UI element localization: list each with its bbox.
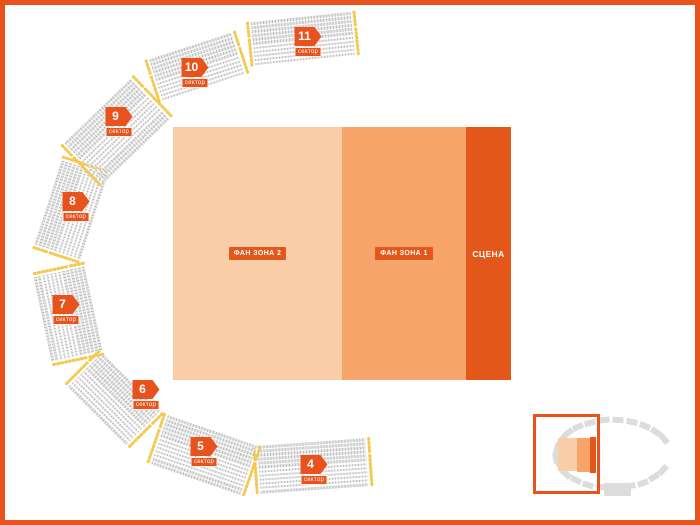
- minimap: [528, 404, 688, 506]
- sector-number: 6: [133, 380, 160, 399]
- sector-word-label: сектор: [53, 315, 79, 325]
- sector-number: 7: [53, 295, 80, 314]
- sector-11-badge: 11сектор: [295, 27, 322, 57]
- sector-word-label: сектор: [301, 475, 327, 485]
- sector-word-label: сектор: [191, 457, 217, 467]
- sector-word-label: сектор: [133, 400, 159, 410]
- minimap-sector-block: [658, 433, 670, 445]
- sector-word-label: сектор: [63, 212, 89, 222]
- sector-number: 5: [191, 437, 218, 456]
- sector-4-badge: 4сектор: [301, 455, 328, 485]
- field-zones: ФАН ЗОНА 2 ФАН ЗОНА 1 СЦЕНА: [173, 127, 511, 380]
- fan-zone-1-label: ФАН ЗОНА 1: [375, 247, 433, 260]
- sector-9-badge: 9сектор: [106, 107, 133, 137]
- sector-6-badge: 6сектор: [133, 380, 160, 410]
- stage-label: СЦЕНА: [472, 249, 504, 259]
- minimap-sector-block: [598, 417, 610, 424]
- sector-8-badge: 8сектор: [63, 192, 90, 222]
- zone-fan-zone-1[interactable]: ФАН ЗОНА 1: [342, 127, 466, 380]
- sector-number: 8: [63, 192, 90, 211]
- fan-zone-2-label: ФАН ЗОНА 2: [229, 247, 287, 260]
- minimap-sector-block: [613, 417, 624, 424]
- minimap-sector-block: [648, 472, 661, 483]
- zone-stage: СЦЕНА: [466, 127, 511, 380]
- sector-7-badge: 7сектор: [53, 295, 80, 325]
- minimap-sector-block: [637, 478, 649, 487]
- minimap-viewport[interactable]: [533, 414, 600, 494]
- minimap-bottom-block: [604, 483, 631, 496]
- sector-10-badge: 10сектор: [182, 58, 209, 88]
- sector-number: 11: [295, 27, 322, 46]
- sector-number: 4: [301, 455, 328, 474]
- sector-word-label: сектор: [182, 78, 208, 88]
- minimap-sector-block: [626, 418, 638, 426]
- zone-fan-zone-2[interactable]: ФАН ЗОНА 2: [173, 127, 342, 380]
- sector-word-label: сектор: [106, 127, 132, 137]
- sector-number: 9: [106, 107, 133, 126]
- sector-word-label: сектор: [295, 47, 321, 57]
- sector-5-badge: 5сектор: [191, 437, 218, 467]
- venue-map: ФАН ЗОНА 2 ФАН ЗОНА 1 СЦЕНА 4сектор5сект…: [0, 0, 700, 525]
- sector-number: 10: [182, 58, 209, 77]
